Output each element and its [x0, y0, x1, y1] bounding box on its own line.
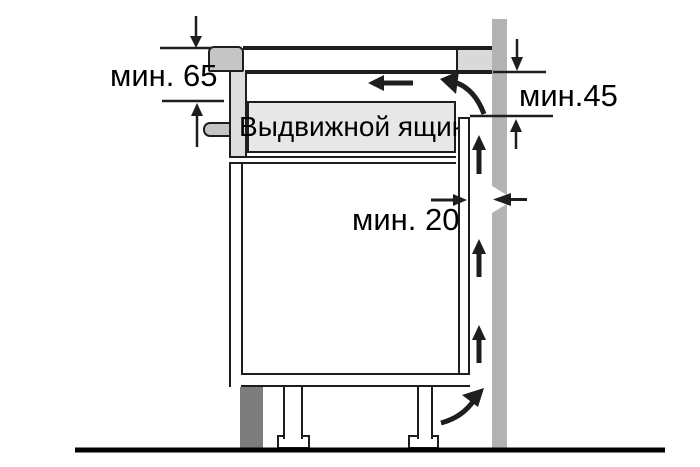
arrow-down-icon	[511, 57, 523, 71]
cabinet-leg	[417, 387, 433, 439]
worktop-rear-block	[456, 50, 492, 70]
airflow-curve-top-head-icon	[440, 71, 459, 94]
drawer-rail	[229, 156, 456, 164]
cabinet-side-panel	[458, 117, 470, 373]
airflow-up-arrow-icon	[472, 135, 486, 150]
drawer-box: Выдвижной ящик	[247, 101, 456, 153]
dimension-label-min-45: мин.45	[519, 80, 618, 111]
dimension-label-min-20: мин. 20	[352, 204, 459, 235]
airflow-up-arrow-icon	[472, 325, 486, 340]
cabinet-bottom-panel	[241, 373, 470, 387]
worktop	[243, 46, 492, 74]
plinth	[240, 387, 263, 448]
airflow-curve-top	[457, 83, 484, 114]
airflow-curve-bottom	[441, 400, 474, 423]
airflow-curve-bottom-head-icon	[462, 388, 484, 407]
airflow-up-arrow-icon	[472, 239, 486, 254]
arrow-down-icon	[190, 36, 202, 48]
drawer-label: Выдвижной ящик	[239, 111, 464, 143]
cabinet-front-panel	[229, 164, 243, 387]
arrow-up-icon	[191, 103, 203, 116]
arrow-up-icon	[510, 119, 522, 132]
dimension-label-min-65: мин. 65	[110, 60, 217, 91]
cabinet-leg	[283, 387, 303, 439]
airflow-left-arrow-icon	[368, 75, 384, 91]
wall	[492, 19, 507, 448]
installation-diagram: Выдвижной ящик мин. 65 мин.45 мин. 20	[0, 0, 700, 467]
